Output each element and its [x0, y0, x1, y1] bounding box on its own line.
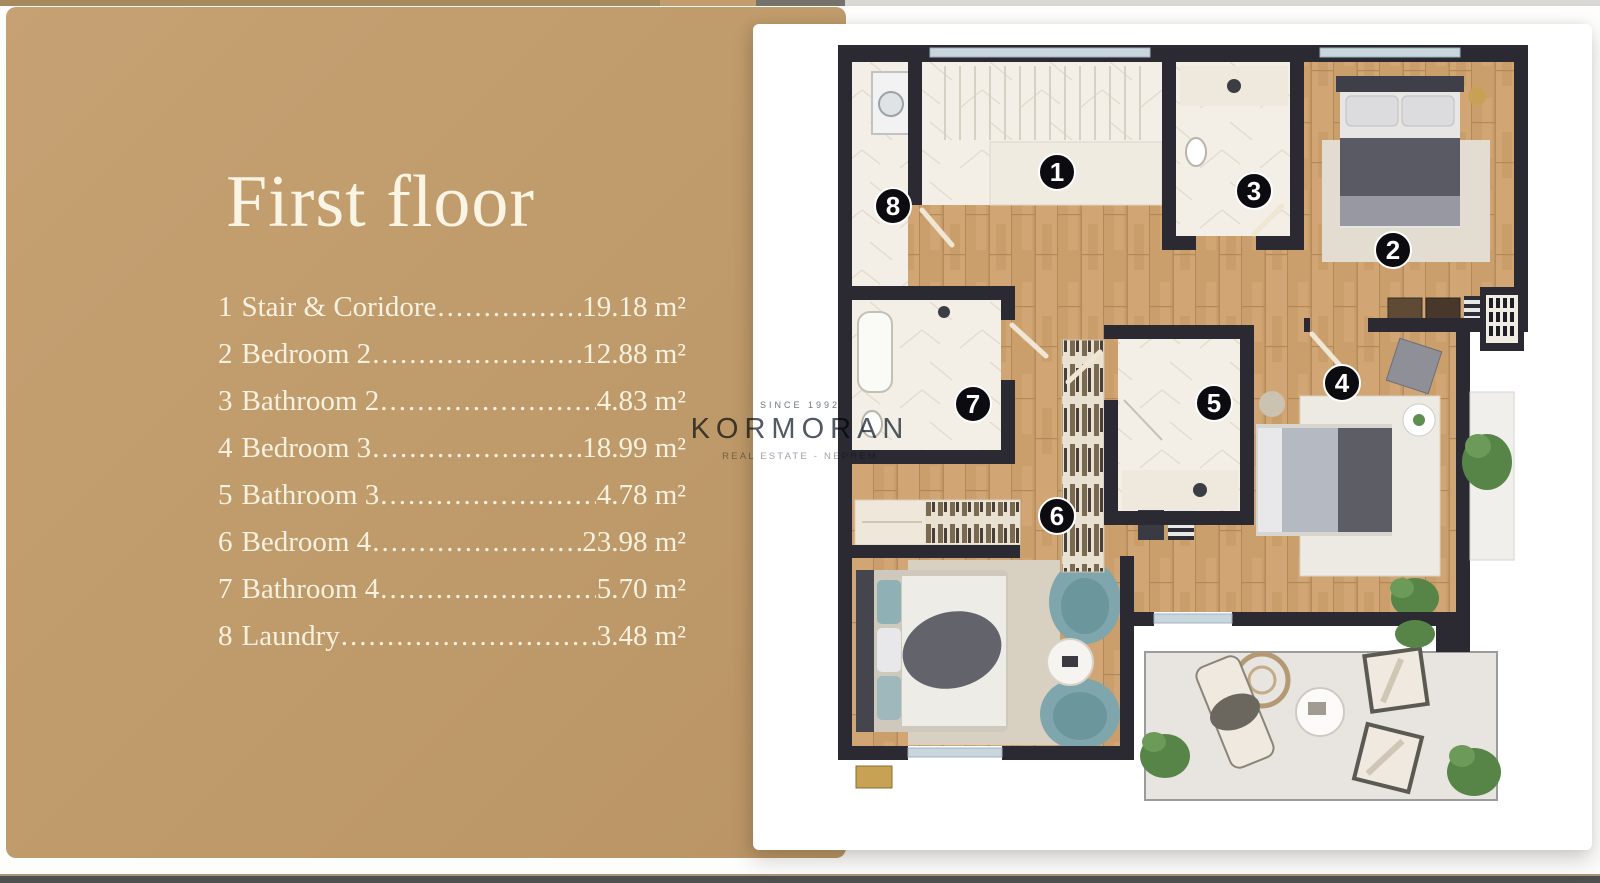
legend-area: 18.99 m²: [582, 425, 686, 472]
legend-leader-dots: ........................................…: [380, 566, 595, 613]
room-legend: 1 Stair & Coridore .....................…: [218, 284, 686, 660]
svg-text:3: 3: [1247, 176, 1261, 206]
legend-number: 8: [218, 613, 233, 660]
legend-label: Bathroom 2: [242, 378, 380, 425]
bottom-edge-bar: [0, 874, 1600, 883]
top-edge-strip-tan: [660, 0, 756, 6]
legend-row: 5 Bathroom 3 ...........................…: [218, 472, 686, 519]
room-badge: 6: [1039, 498, 1075, 534]
page-title: First floor: [226, 160, 746, 245]
legend-area: 4.83 m²: [597, 378, 686, 425]
legend-leader-dots: ........................................…: [372, 331, 581, 378]
legend-number: 7: [218, 566, 233, 613]
svg-text:2: 2: [1386, 235, 1400, 265]
legend-number: 3: [218, 378, 233, 425]
legend-leader-dots: ........................................…: [380, 472, 595, 519]
room-badge: 3: [1236, 173, 1272, 209]
legend-area: 12.88 m²: [582, 331, 686, 378]
legend-number: 1: [218, 284, 233, 331]
legend-leader-dots: ........................................…: [341, 613, 596, 660]
legend-row: 2 Bedroom 2 ............................…: [218, 331, 686, 378]
terrace: [1145, 648, 1497, 800]
lounge-chair: [1354, 724, 1422, 792]
floor-plan: 12345678: [753, 24, 1592, 850]
legend-label: Bedroom 4: [242, 519, 372, 566]
washing-machine: [872, 72, 910, 134]
gold-decor: [1468, 87, 1486, 105]
svg-text:8: 8: [886, 191, 900, 221]
legend-label: Laundry: [242, 613, 340, 660]
svg-text:4: 4: [1335, 368, 1350, 398]
slide: First floor 1 Stair & Coridore .........…: [0, 0, 1600, 883]
hall-closet: [1062, 340, 1104, 572]
legend-area: 23.98 m²: [582, 519, 686, 566]
legend-row: 7 Bathroom 4 ...........................…: [218, 566, 686, 613]
top-edge-strip-gray: [845, 0, 1600, 6]
legend-leader-dots: ........................................…: [380, 378, 595, 425]
legend-number: 4: [218, 425, 233, 472]
legend-number: 5: [218, 472, 233, 519]
top-edge-strip-left: [0, 0, 660, 6]
room-badge: 5: [1196, 385, 1232, 421]
legend-row: 8 Laundry ..............................…: [218, 613, 686, 660]
utility-box: [856, 766, 892, 788]
legend-leader-dots: ........................................…: [372, 425, 581, 472]
legend-number: 6: [218, 519, 233, 566]
legend-area: 3.48 m²: [597, 613, 686, 660]
room-badge: 1: [1039, 154, 1075, 190]
room-badge: 7: [955, 386, 991, 422]
legend-row: 6 Bedroom 4 ............................…: [218, 519, 686, 566]
legend-label: Bedroom 2: [242, 331, 372, 378]
legend-leader-dots: ........................................…: [372, 519, 581, 566]
room-badge: 2: [1375, 232, 1411, 268]
legend-label: Bathroom 4: [242, 566, 380, 613]
top-edge-strip-dark: [756, 0, 845, 6]
stair-landing: [990, 142, 1162, 205]
lounge-chair: [1364, 648, 1427, 711]
legend-label: Stair & Coridore: [242, 284, 437, 331]
legend-label: Bathroom 3: [242, 472, 380, 519]
svg-text:5: 5: [1207, 388, 1221, 418]
legend-row: 1 Stair & Coridore .....................…: [218, 284, 686, 331]
legend-leader-dots: ........................................…: [437, 284, 581, 331]
legend-number: 2: [218, 331, 233, 378]
svg-text:1: 1: [1050, 157, 1064, 187]
svg-text:6: 6: [1050, 501, 1064, 531]
svg-text:7: 7: [966, 389, 980, 419]
legend-area: 5.70 m²: [597, 566, 686, 613]
legend-area: 19.18 m²: [582, 284, 686, 331]
room-badge: 8: [875, 188, 911, 224]
room-badge: 4: [1324, 365, 1360, 401]
radiator: [1486, 295, 1518, 343]
legend-label: Bedroom 3: [242, 425, 372, 472]
legend-row: 4 Bedroom 3 ............................…: [218, 425, 686, 472]
legend-area: 4.78 m²: [597, 472, 686, 519]
legend-row: 3 Bathroom 2 ...........................…: [218, 378, 686, 425]
